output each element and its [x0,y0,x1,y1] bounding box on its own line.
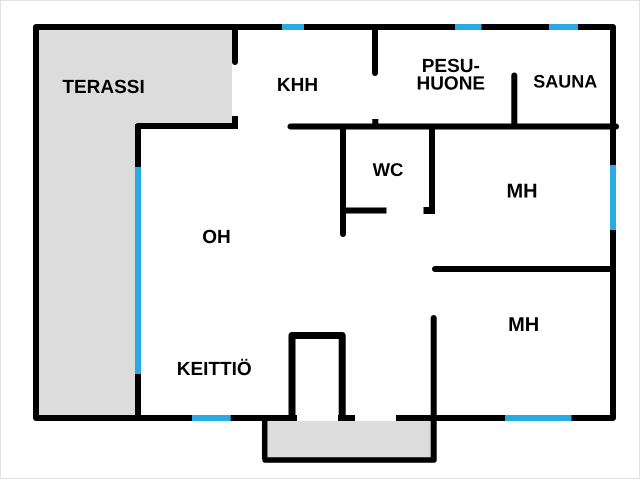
svg-text:MH: MH [506,181,537,203]
svg-text:KHH: KHH [277,75,318,96]
svg-text:HUONE: HUONE [416,74,485,95]
svg-text:WC: WC [373,159,404,180]
svg-text:KEITTIÖ: KEITTIÖ [177,358,252,380]
svg-text:MH: MH [508,314,539,336]
svg-text:TERASSI: TERASSI [62,77,144,98]
svg-text:SAUNA: SAUNA [533,71,597,91]
svg-text:OH: OH [202,227,231,248]
